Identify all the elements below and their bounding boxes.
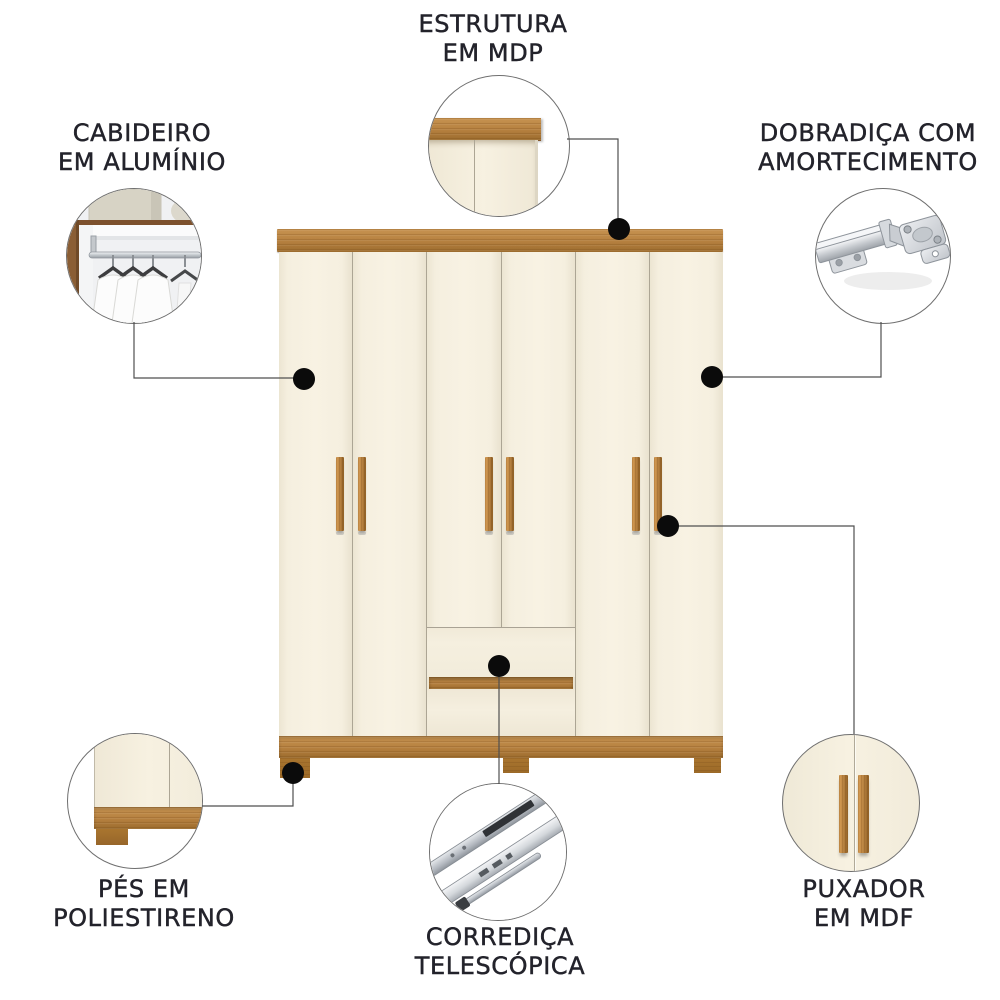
handle-closeup-image <box>858 775 869 853</box>
callout-label-line: ESTRUTURA <box>343 10 643 39</box>
hinge-closeup-image <box>816 189 950 323</box>
wardrobe-foot <box>503 758 529 773</box>
hanger-rail-closeup-image <box>67 189 201 323</box>
drawer-pull-groove <box>429 677 573 689</box>
wood-top-closeup-image <box>428 118 541 141</box>
door-handle <box>485 457 493 531</box>
puxador-inset <box>782 734 920 872</box>
base-wood-band <box>94 807 202 829</box>
connector-line-dobradica <box>713 322 881 377</box>
dobradica-inset <box>815 188 951 324</box>
handle-closeup-image <box>839 775 848 853</box>
drawer-slide-closeup-image <box>430 784 566 920</box>
door-handle <box>336 457 344 531</box>
callout-label-corredica: CORREDIÇA TELESCÓPICA <box>350 923 650 981</box>
callout-label-dobradica: DOBRADIÇA COM AMORTECIMENTO <box>718 119 1000 177</box>
estrutura-inset <box>428 75 570 217</box>
door-corner-closeup <box>428 140 538 217</box>
door-handle <box>506 457 514 531</box>
door-handle <box>632 457 640 531</box>
callout-label-line: TELESCÓPICA <box>350 952 650 981</box>
foot-closeup-image <box>94 734 203 807</box>
door-seam-line <box>474 140 475 217</box>
door-handle <box>358 457 366 531</box>
callout-label-cabideiro: CABIDEIRO EM ALUMÍNIO <box>0 119 284 177</box>
wardrobe-top-panel <box>277 229 723 252</box>
wardrobe-features-infographic: ESTRUTURA EM MDP CABIDEIRO EM ALUMÍNIO D… <box>0 0 1000 1000</box>
wardrobe-drawer <box>427 627 575 736</box>
callout-label-estrutura: ESTRUTURA EM MDP <box>343 10 643 68</box>
drawer-front <box>427 627 575 677</box>
corredica-inset <box>429 783 567 921</box>
callout-label-line: PÉS EM <box>0 875 288 904</box>
wardrobe-foot <box>694 758 721 773</box>
callout-label-line: CABIDEIRO <box>0 119 284 148</box>
cabideiro-inset <box>66 188 202 324</box>
callout-label-puxador: PUXADOR EM MDF <box>714 875 1000 933</box>
callout-label-line: DOBRADIÇA COM <box>718 119 1000 148</box>
callout-label-pes: PÉS EM POLIESTIRENO <box>0 875 288 933</box>
door-seam-line <box>169 734 170 807</box>
callout-label-line: PUXADOR <box>714 875 1000 904</box>
wardrobe-foot <box>280 758 310 778</box>
drawer-lower-panel <box>427 689 575 736</box>
callout-label-line: CORREDIÇA <box>350 923 650 952</box>
callout-label-line: EM MDP <box>343 39 643 68</box>
callout-label-line: EM ALUMÍNIO <box>0 148 284 177</box>
foot-block <box>96 829 128 845</box>
door-seam-line <box>854 735 856 871</box>
callout-label-line: EM MDF <box>714 904 1000 933</box>
callout-label-line: AMORTECIMENTO <box>718 148 1000 177</box>
pes-inset <box>67 733 203 869</box>
wardrobe-illustration <box>277 229 723 779</box>
connector-line-estrutura <box>567 139 618 229</box>
door-handle <box>654 457 662 531</box>
wardrobe-base-panel <box>279 736 723 758</box>
callout-label-line: POLIESTIRENO <box>0 904 288 933</box>
